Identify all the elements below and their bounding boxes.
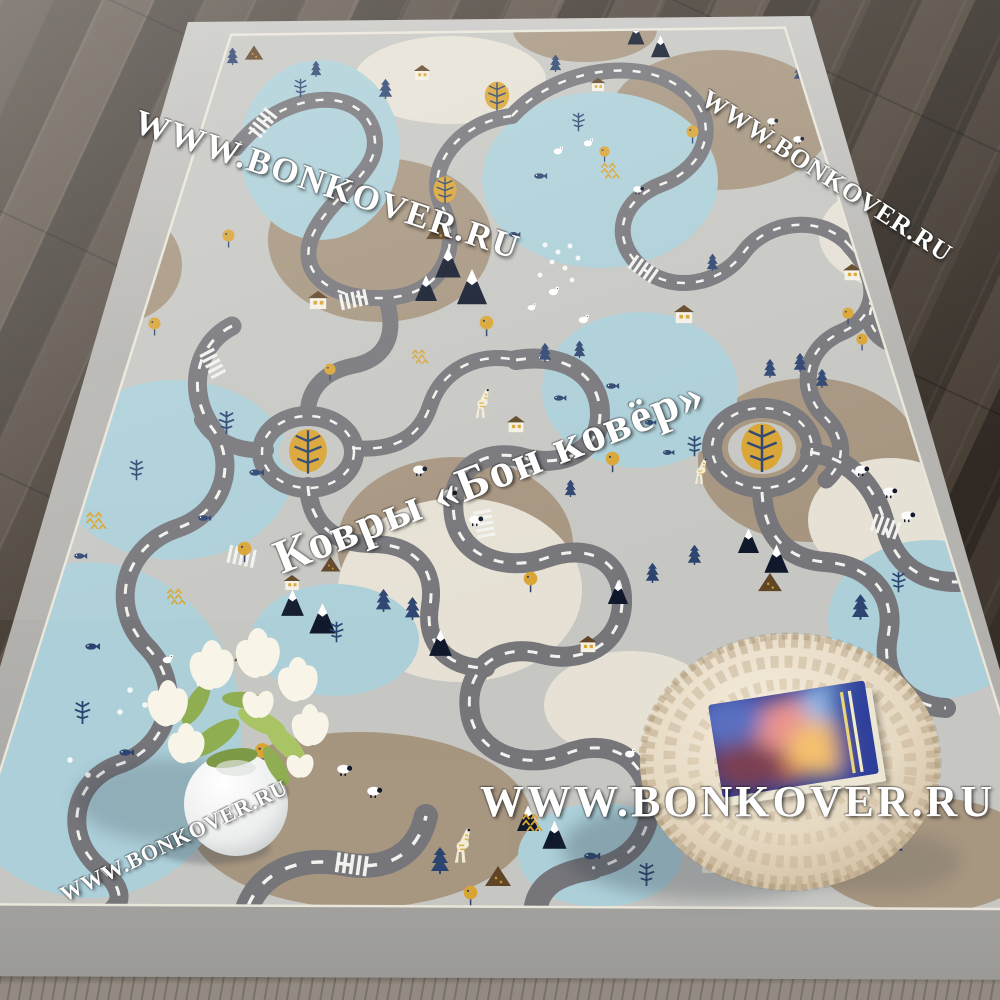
rug-product-photo: WWW.BONKOVER.RU WWW.BONKOVER.RU Ковры «Б… — [0, 0, 1000, 1000]
watermark-bottom-center: WWW.BONKOVER.RU — [480, 776, 995, 827]
sunlight-wash — [0, 0, 1000, 620]
